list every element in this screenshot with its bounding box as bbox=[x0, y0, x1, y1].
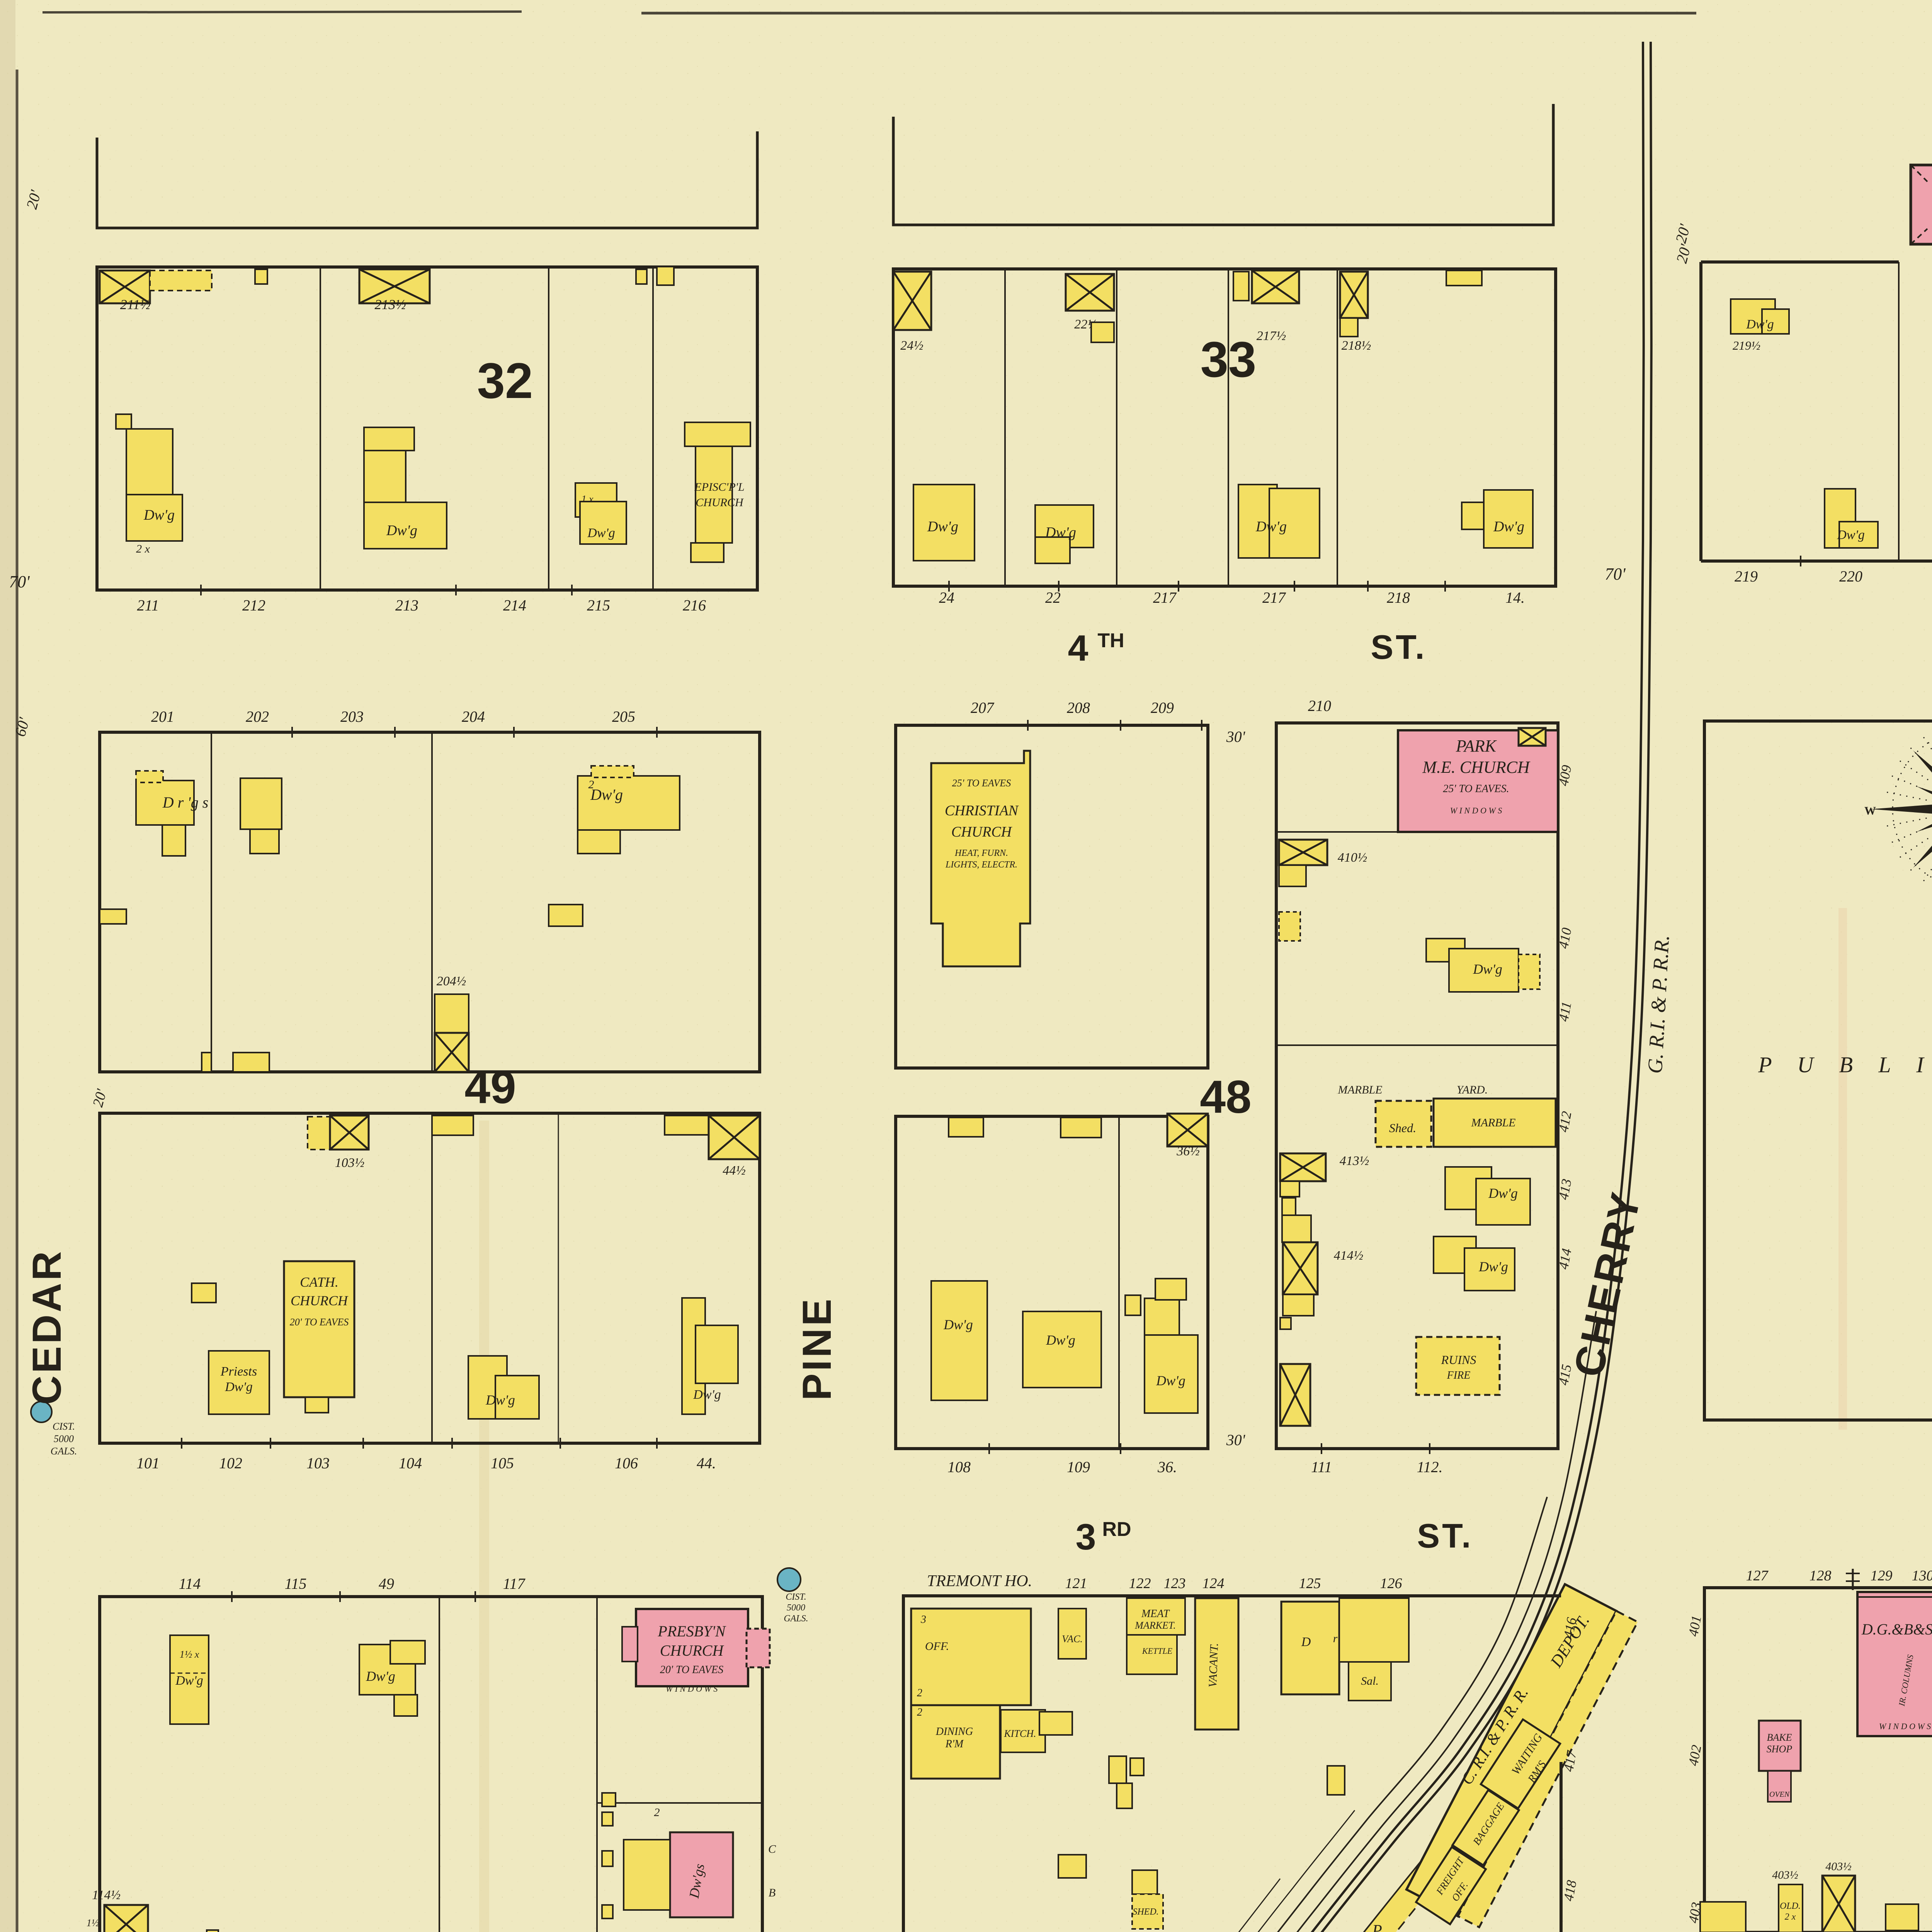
svg-text:OFF.: OFF. bbox=[925, 1640, 949, 1653]
svg-text:Dw'g: Dw'g bbox=[386, 522, 417, 539]
svg-text:49: 49 bbox=[379, 1575, 394, 1592]
svg-text:36.: 36. bbox=[1157, 1458, 1177, 1476]
svg-text:OVEN: OVEN bbox=[1769, 1790, 1790, 1799]
svg-text:207: 207 bbox=[971, 699, 995, 716]
svg-text:413½: 413½ bbox=[1340, 1154, 1369, 1168]
svg-text:Dw'g: Dw'g bbox=[1473, 961, 1502, 977]
svg-text:VAC.: VAC. bbox=[1062, 1633, 1083, 1645]
svg-text:Dw'g: Dw'g bbox=[366, 1668, 395, 1684]
svg-text:CHRISTIAN: CHRISTIAN bbox=[945, 803, 1019, 819]
svg-text:103½: 103½ bbox=[335, 1156, 365, 1170]
svg-text:M.E. CHURCH: M.E. CHURCH bbox=[1422, 758, 1531, 777]
svg-text:128: 128 bbox=[1810, 1568, 1832, 1584]
svg-text:123: 123 bbox=[1164, 1575, 1186, 1592]
svg-text:PARK: PARK bbox=[1456, 736, 1497, 755]
svg-text:OLD.: OLD. bbox=[1780, 1901, 1801, 1911]
svg-text:213: 213 bbox=[395, 597, 418, 614]
svg-text:403½: 403½ bbox=[1825, 1860, 1852, 1873]
svg-text:Dw'g: Dw'g bbox=[1488, 1185, 1518, 1201]
svg-text:30': 30' bbox=[1226, 1431, 1246, 1449]
svg-text:105: 105 bbox=[491, 1454, 514, 1472]
svg-text:Dw'g: Dw'g bbox=[1255, 519, 1287, 535]
svg-text:403½: 403½ bbox=[1772, 1869, 1798, 1881]
svg-text:TH: TH bbox=[1097, 629, 1124, 652]
svg-text:CIST.: CIST. bbox=[786, 1592, 806, 1602]
svg-text:104: 104 bbox=[399, 1454, 422, 1472]
svg-text:Sal.: Sal. bbox=[1361, 1675, 1379, 1687]
svg-text:210: 210 bbox=[1308, 697, 1331, 714]
svg-text:117: 117 bbox=[503, 1575, 526, 1592]
svg-text:KITCH.: KITCH. bbox=[1003, 1728, 1036, 1739]
svg-text:BAKE: BAKE bbox=[1767, 1732, 1792, 1743]
svg-text:CATH.: CATH. bbox=[300, 1274, 338, 1290]
svg-text:SHED.: SHED. bbox=[1133, 1907, 1158, 1917]
svg-text:EPISC'P'L: EPISC'P'L bbox=[694, 481, 745, 493]
svg-text:25' TO EAVES.: 25' TO EAVES. bbox=[1443, 783, 1509, 795]
svg-text:Dw'g: Dw'g bbox=[1746, 317, 1774, 332]
svg-text:SHOP: SHOP bbox=[1767, 1743, 1793, 1755]
svg-text:Shed.: Shed. bbox=[1389, 1121, 1416, 1135]
svg-text:W I N D O W S: W I N D O W S bbox=[666, 1684, 718, 1694]
svg-text:127: 127 bbox=[1746, 1568, 1769, 1584]
svg-text:103: 103 bbox=[306, 1454, 330, 1472]
svg-text:MARBLE: MARBLE bbox=[1471, 1116, 1516, 1129]
svg-text:217: 217 bbox=[1153, 589, 1177, 606]
svg-text:KETTLE: KETTLE bbox=[1142, 1646, 1173, 1656]
svg-text:PINE: PINE bbox=[794, 1296, 840, 1400]
svg-text:1½ x: 1½ x bbox=[180, 1649, 199, 1660]
svg-text:202: 202 bbox=[246, 708, 269, 725]
svg-text:208: 208 bbox=[1067, 699, 1090, 716]
svg-text:2: 2 bbox=[917, 1687, 922, 1699]
svg-text:5000: 5000 bbox=[787, 1603, 805, 1613]
svg-text:114: 114 bbox=[179, 1575, 201, 1592]
svg-text:203: 203 bbox=[340, 708, 364, 725]
svg-text:217½: 217½ bbox=[1257, 329, 1286, 343]
svg-text:14.: 14. bbox=[1505, 589, 1525, 606]
svg-text:CHURCH: CHURCH bbox=[951, 824, 1013, 840]
svg-text:Dw'g: Dw'g bbox=[927, 519, 958, 535]
svg-text:219: 219 bbox=[1735, 568, 1758, 585]
svg-text:36½: 36½ bbox=[1176, 1144, 1200, 1158]
svg-text:20' TO EAVES: 20' TO EAVES bbox=[660, 1664, 723, 1676]
svg-text:P: P bbox=[1372, 1922, 1382, 1932]
svg-text:Dw'g: Dw'g bbox=[587, 526, 615, 540]
svg-text:2 x: 2 x bbox=[136, 543, 150, 555]
svg-text:Dw'g: Dw'g bbox=[175, 1673, 203, 1688]
svg-text:414½: 414½ bbox=[1334, 1248, 1364, 1263]
svg-text:106: 106 bbox=[615, 1454, 638, 1472]
svg-text:214: 214 bbox=[503, 597, 526, 614]
svg-text:Dw'g: Dw'g bbox=[1478, 1259, 1508, 1274]
svg-text:GALS.: GALS. bbox=[784, 1614, 808, 1624]
svg-text:C: C bbox=[768, 1843, 776, 1855]
svg-text:219½: 219½ bbox=[1733, 338, 1760, 352]
svg-text:201: 201 bbox=[151, 708, 174, 725]
svg-text:130: 130 bbox=[1912, 1568, 1932, 1584]
svg-text:Dw'g: Dw'g bbox=[224, 1380, 253, 1394]
svg-text:126: 126 bbox=[1380, 1575, 1402, 1592]
svg-text:1½: 1½ bbox=[87, 1917, 99, 1929]
svg-text:211½: 211½ bbox=[120, 297, 150, 312]
svg-text:112.: 112. bbox=[1417, 1458, 1442, 1476]
svg-text:Dw'g: Dw'g bbox=[1156, 1373, 1185, 1388]
svg-text:Dw'g: Dw'g bbox=[1837, 528, 1865, 542]
svg-text:VACANT.: VACANT. bbox=[1206, 1643, 1221, 1688]
svg-text:30': 30' bbox=[1226, 728, 1246, 745]
svg-text:CEDAR: CEDAR bbox=[24, 1249, 70, 1405]
svg-text:W: W bbox=[1864, 804, 1876, 817]
svg-text:205: 205 bbox=[612, 708, 635, 725]
svg-text:Dw'g: Dw'g bbox=[943, 1317, 973, 1332]
svg-text:129: 129 bbox=[1871, 1568, 1893, 1584]
svg-text:3: 3 bbox=[1076, 1517, 1096, 1558]
svg-text:Dw'g: Dw'g bbox=[693, 1388, 721, 1402]
svg-text:2: 2 bbox=[917, 1706, 922, 1718]
svg-text:D.G.&B&S: D.G.&B&S bbox=[1861, 1621, 1932, 1638]
svg-text:204: 204 bbox=[462, 708, 485, 725]
svg-text:ST.: ST. bbox=[1417, 1517, 1473, 1555]
svg-text:70': 70' bbox=[9, 572, 30, 591]
svg-text:YARD.: YARD. bbox=[1457, 1083, 1488, 1096]
svg-text:R'M: R'M bbox=[945, 1738, 964, 1750]
svg-text:70': 70' bbox=[1605, 565, 1626, 583]
svg-text:124: 124 bbox=[1202, 1575, 1225, 1592]
svg-text:DINING: DINING bbox=[935, 1726, 973, 1738]
svg-text:ST.: ST. bbox=[1371, 628, 1427, 666]
svg-text:108: 108 bbox=[947, 1458, 971, 1476]
svg-text:211: 211 bbox=[137, 597, 159, 614]
svg-text:213½: 213½ bbox=[375, 297, 406, 312]
svg-text:B: B bbox=[769, 1886, 776, 1899]
svg-text:122: 122 bbox=[1129, 1575, 1151, 1592]
svg-text:D r 'g s: D r 'g s bbox=[162, 794, 209, 811]
svg-text:Priests: Priests bbox=[220, 1364, 257, 1379]
svg-text:W I N D O W S: W I N D O W S bbox=[1879, 1721, 1931, 1731]
svg-text:101: 101 bbox=[136, 1454, 160, 1472]
svg-text:3: 3 bbox=[920, 1614, 926, 1626]
svg-text:111: 111 bbox=[1311, 1458, 1332, 1476]
svg-text:PRESBY'N: PRESBY'N bbox=[657, 1622, 726, 1640]
svg-text:25' TO EAVES: 25' TO EAVES bbox=[952, 777, 1011, 789]
svg-text:2 x: 2 x bbox=[1785, 1912, 1796, 1922]
svg-text:D: D bbox=[1301, 1635, 1311, 1649]
svg-text:5000: 5000 bbox=[54, 1433, 74, 1444]
svg-text:Dw'g: Dw'g bbox=[143, 507, 175, 523]
svg-text:Dw'g: Dw'g bbox=[485, 1392, 515, 1408]
svg-text:GALS.: GALS. bbox=[51, 1446, 77, 1457]
svg-text:CHURCH: CHURCH bbox=[696, 496, 744, 509]
svg-text:4: 4 bbox=[1068, 628, 1088, 669]
svg-text:218½: 218½ bbox=[1342, 338, 1371, 353]
svg-text:220: 220 bbox=[1839, 568, 1862, 585]
svg-text:204½: 204½ bbox=[437, 974, 466, 988]
svg-text:121: 121 bbox=[1065, 1575, 1087, 1592]
svg-text:215: 215 bbox=[587, 597, 610, 614]
svg-text:Dw'g: Dw'g bbox=[1045, 524, 1076, 541]
svg-text:2: 2 bbox=[588, 778, 594, 791]
svg-text:114½: 114½ bbox=[92, 1888, 121, 1902]
svg-text:217: 217 bbox=[1262, 589, 1286, 606]
svg-text:24½: 24½ bbox=[900, 338, 923, 353]
svg-text:33: 33 bbox=[1201, 331, 1257, 388]
svg-text:102: 102 bbox=[219, 1454, 242, 1472]
svg-text:20' TO EAVES: 20' TO EAVES bbox=[290, 1316, 349, 1328]
svg-text:209: 209 bbox=[1151, 699, 1174, 716]
svg-text:MARBLE: MARBLE bbox=[1338, 1083, 1383, 1096]
svg-text:P U B L I C: P U B L I C bbox=[1758, 1052, 1932, 1077]
svg-text:Dw'g: Dw'g bbox=[1493, 519, 1524, 535]
svg-text:410½: 410½ bbox=[1338, 850, 1367, 865]
svg-text:RUINS: RUINS bbox=[1441, 1353, 1476, 1367]
svg-text:24: 24 bbox=[939, 589, 954, 606]
svg-text:115: 115 bbox=[284, 1575, 306, 1592]
svg-text:W I N D O W S: W I N D O W S bbox=[1450, 806, 1502, 815]
svg-text:125: 125 bbox=[1299, 1575, 1321, 1592]
svg-text:109: 109 bbox=[1067, 1458, 1090, 1476]
svg-text:MEAT: MEAT bbox=[1141, 1608, 1170, 1620]
svg-text:HEAT, FURN.: HEAT, FURN. bbox=[954, 848, 1008, 858]
svg-text:CHURCH: CHURCH bbox=[660, 1642, 724, 1659]
svg-text:44½: 44½ bbox=[723, 1163, 746, 1178]
svg-text:RD: RD bbox=[1102, 1518, 1131, 1541]
svg-text:FIRE: FIRE bbox=[1447, 1369, 1471, 1381]
svg-text:Dw'g: Dw'g bbox=[590, 786, 623, 803]
svg-text:2: 2 bbox=[654, 1806, 660, 1819]
svg-text:CHURCH: CHURCH bbox=[291, 1293, 349, 1308]
svg-text:LIGHTS, ELECTR.: LIGHTS, ELECTR. bbox=[945, 860, 1017, 870]
svg-text:218: 218 bbox=[1387, 589, 1410, 606]
svg-text:Dw'g: Dw'g bbox=[1046, 1332, 1075, 1348]
svg-text:1 x: 1 x bbox=[581, 493, 594, 505]
svg-text:MARKET.: MARKET. bbox=[1134, 1620, 1176, 1631]
svg-text:216: 216 bbox=[683, 597, 706, 614]
svg-text:44.: 44. bbox=[697, 1454, 716, 1472]
svg-text:212: 212 bbox=[242, 597, 265, 614]
svg-text:CIST.: CIST. bbox=[53, 1421, 75, 1432]
svg-text:32: 32 bbox=[477, 352, 533, 409]
svg-text:49: 49 bbox=[464, 1061, 516, 1113]
svg-text:TREMONT HO.: TREMONT HO. bbox=[927, 1572, 1032, 1590]
